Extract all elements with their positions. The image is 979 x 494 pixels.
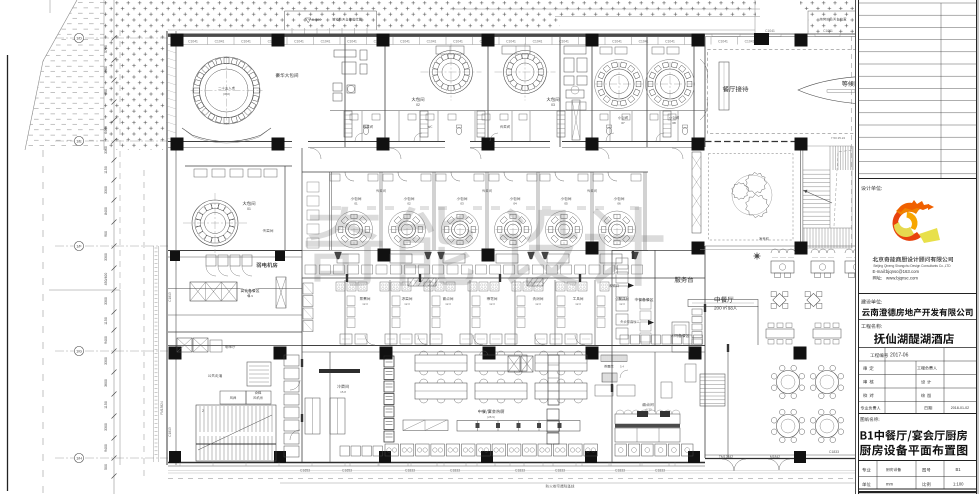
svg-text:C1041: C1041: [718, 39, 728, 43]
svg-text:TM12842: TM12842: [719, 455, 733, 459]
svg-text:12.3: 12.3: [535, 302, 541, 306]
svg-text:C1041: C1041: [347, 39, 357, 43]
svg-text:Beijing Qineng Shangchu Design: Beijing Qineng Shangchu Design Consultan…: [873, 264, 951, 268]
svg-text:200: 200: [714, 306, 722, 311]
svg-text:5.4: 5.4: [620, 365, 624, 369]
svg-text:3300: 3300: [104, 146, 108, 154]
svg-text:3300: 3300: [104, 297, 108, 305]
svg-text:900: 900: [104, 231, 108, 237]
svg-text:450: 450: [104, 89, 108, 95]
svg-text:2018-01-02: 2018-01-02: [951, 406, 969, 410]
svg-text:C1041: C1041: [427, 39, 437, 43]
svg-text:B1: B1: [955, 467, 961, 472]
svg-text:1980: 1980: [104, 66, 108, 74]
svg-text:450/400: 450/400: [104, 273, 108, 286]
svg-text:03: 03: [551, 103, 555, 107]
svg-text:E-mail:bjqnsc@163.com: E-mail:bjqnsc@163.com: [873, 269, 920, 274]
svg-text:1/D: 1/D: [76, 37, 82, 41]
svg-text:1150: 1150: [104, 317, 108, 325]
svg-text:C1041: C1041: [188, 39, 198, 43]
svg-text:3300: 3300: [104, 423, 108, 431]
svg-text:05: 05: [564, 202, 568, 206]
svg-text:15.8: 15.8: [340, 390, 346, 394]
svg-text:02: 02: [416, 103, 420, 107]
svg-text:C1041: C1041: [294, 39, 304, 43]
svg-text:C1041: C1041: [745, 39, 755, 43]
svg-text:3600: 3600: [104, 379, 108, 387]
svg-text:1:100: 1:100: [953, 482, 964, 487]
svg-text:12.3: 12.3: [489, 302, 495, 306]
svg-text:3300: 3300: [104, 357, 108, 365]
svg-text:1/H: 1/H: [76, 457, 82, 461]
svg-text:1/G: 1/G: [76, 350, 82, 354]
svg-text:500: 500: [104, 464, 108, 470]
svg-text:1/E: 1/E: [76, 140, 82, 144]
svg-text:3300: 3300: [104, 253, 108, 261]
svg-text:(360): (360): [223, 92, 230, 96]
svg-text:C1041: C1041: [559, 39, 569, 43]
svg-text:C1041: C1041: [215, 39, 225, 43]
svg-text:08: 08: [672, 121, 676, 125]
svg-text:02: 02: [407, 202, 411, 206]
svg-text:C1041: C1041: [506, 39, 516, 43]
svg-text:9400: 9400: [104, 444, 108, 452]
svg-text:1/F: 1/F: [76, 245, 82, 249]
svg-text:12.3: 12.3: [362, 302, 368, 306]
svg-text:06: 06: [617, 202, 621, 206]
svg-text:C1041: C1041: [533, 39, 543, 43]
svg-text:C1813: C1813: [168, 292, 172, 302]
svg-text:1150: 1150: [104, 401, 108, 409]
svg-text:C1041: C1041: [321, 39, 331, 43]
svg-text:01: 01: [354, 202, 358, 206]
svg-text:C1813: C1813: [168, 427, 172, 437]
svg-text:6400: 6400: [104, 126, 108, 134]
svg-text:M1842: M1842: [770, 455, 780, 459]
svg-text:3300: 3300: [104, 186, 108, 194]
svg-text:C1041: C1041: [612, 39, 622, 43]
svg-text:12.3: 12.3: [445, 302, 451, 306]
svg-text:+6.30: +6.30: [644, 408, 652, 412]
svg-text:51.9: 51.9: [247, 294, 253, 298]
svg-text:mm: mm: [886, 482, 893, 487]
svg-text:C1041: C1041: [241, 39, 251, 43]
svg-text:07: 07: [621, 121, 625, 125]
svg-text:C1041: C1041: [453, 39, 463, 43]
svg-text:12.3: 12.3: [404, 302, 410, 306]
svg-text:2: 2: [202, 409, 204, 413]
svg-text:12.3: 12.3: [619, 302, 625, 306]
svg-text:2017-06: 2017-06: [890, 353, 909, 359]
svg-text:1150: 1150: [104, 166, 108, 174]
svg-text:C1041: C1041: [400, 39, 410, 43]
svg-text:12.3: 12.3: [575, 302, 581, 306]
svg-text:C1041: C1041: [823, 29, 833, 33]
svg-text:-6.100: -6.100: [311, 18, 322, 22]
svg-text:9400: 9400: [104, 336, 108, 344]
svg-text:04: 04: [513, 202, 517, 206]
svg-text:www.bjqnsc.com: www.bjqnsc.com: [886, 276, 918, 281]
svg-text:5700: 5700: [104, 45, 108, 53]
svg-text:7.50 25.24: 7.50 25.24: [831, 136, 846, 140]
svg-text:03: 03: [460, 202, 464, 206]
svg-text:C1041: C1041: [665, 39, 675, 43]
svg-text:8400: 8400: [104, 207, 108, 215]
svg-text:C1833: C1833: [829, 450, 839, 454]
svg-text:(28.9): (28.9): [487, 415, 495, 419]
svg-text:C1041: C1041: [765, 29, 775, 33]
svg-text:01: 01: [247, 207, 251, 211]
svg-text:FM13824: FM13824: [160, 401, 164, 415]
